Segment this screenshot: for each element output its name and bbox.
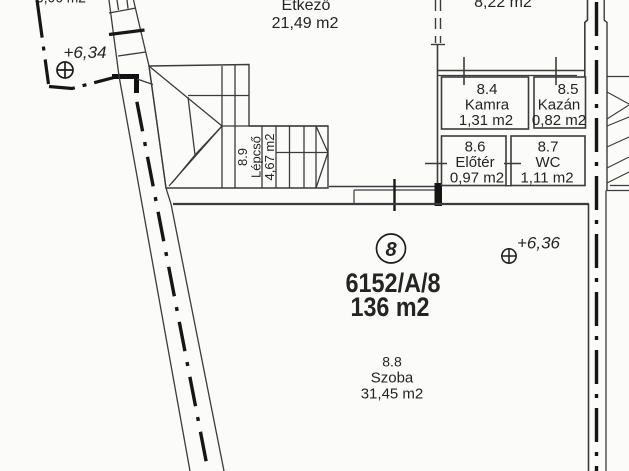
svg-text:4,67 m2: 4,67 m2 <box>262 134 277 181</box>
svg-text:Szoba: Szoba <box>371 370 414 387</box>
svg-text:WC: WC <box>536 154 561 171</box>
svg-text:8.8: 8.8 <box>382 354 402 370</box>
svg-text:1,31 m2: 1,31 m2 <box>459 112 513 129</box>
svg-text:31,45 m2: 31,45 m2 <box>361 386 424 403</box>
svg-text:8.6: 8.6 <box>465 139 486 156</box>
svg-text:8.4: 8.4 <box>477 81 498 98</box>
svg-text:8.7: 8.7 <box>538 139 559 156</box>
svg-text:5,06 m2: 5,06 m2 <box>36 0 86 7</box>
svg-text:Kamra: Kamra <box>465 97 510 114</box>
svg-text:8: 8 <box>385 239 397 261</box>
svg-text:Előtér: Előtér <box>455 154 494 171</box>
svg-text:+6,36: +6,36 <box>517 234 561 253</box>
svg-text:8.5: 8.5 <box>558 81 579 98</box>
svg-text:136 m2: 136 m2 <box>351 292 430 322</box>
svg-text:1,11 m2: 1,11 m2 <box>520 170 573 187</box>
svg-text:0,82 m2: 0,82 m2 <box>532 112 586 129</box>
svg-text:Kazán: Kazán <box>538 97 581 114</box>
svg-text:8,22 m2: 8,22 m2 <box>474 0 532 11</box>
svg-text:21,49 m2: 21,49 m2 <box>272 15 339 32</box>
svg-text:0,97 m2: 0,97 m2 <box>450 170 504 187</box>
svg-text:Étkező: Étkező <box>282 0 331 14</box>
svg-text:+6,34: +6,34 <box>63 43 106 62</box>
